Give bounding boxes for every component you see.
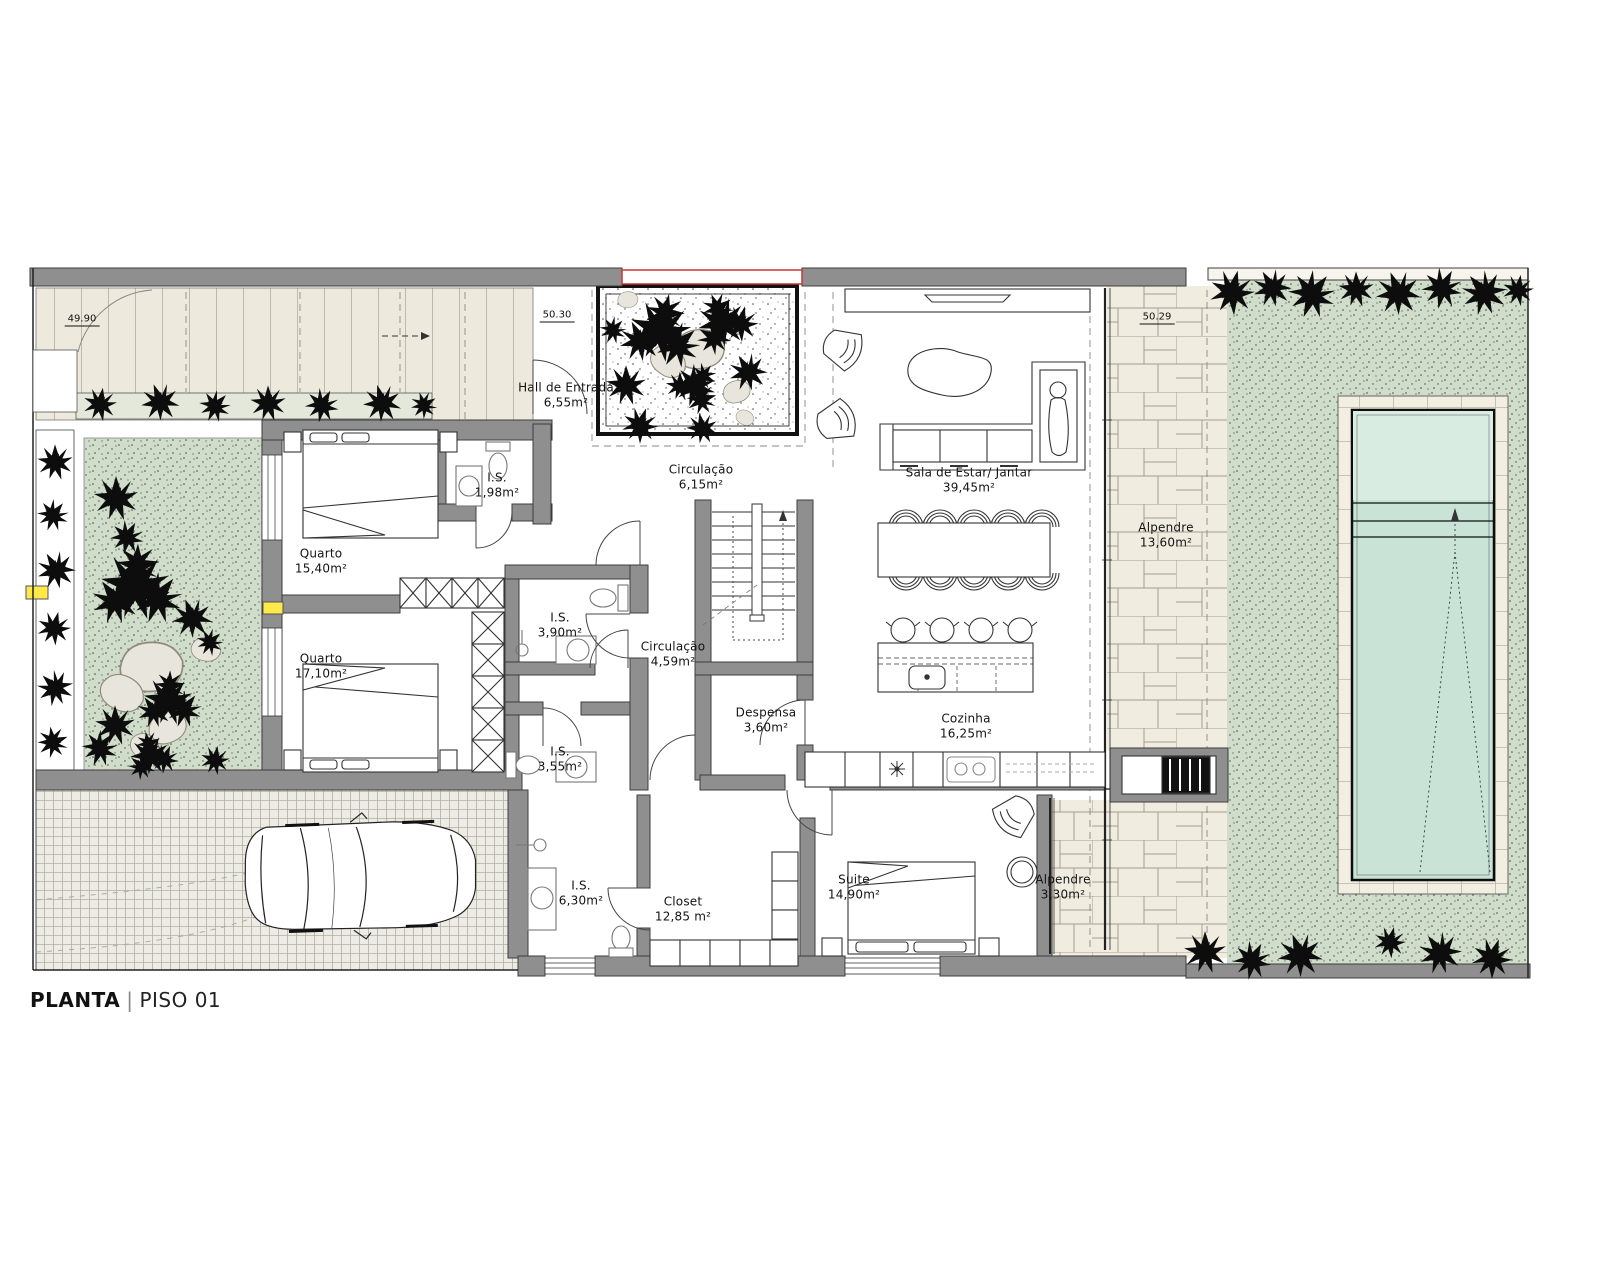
suite-armchair [987,788,1042,843]
marker-yellow-left [26,586,48,599]
alpendre-stone-right [1107,286,1227,751]
tv-console [845,289,1090,312]
floor-plan-drawing [0,0,1600,1280]
bbq-grill [1122,756,1216,794]
roof-opening-red [622,270,802,284]
kitchen-island [878,618,1037,692]
coffee-table [908,349,992,397]
suite-side-table [1007,857,1037,887]
alpendre-stone-lower [1049,800,1227,958]
stairs [703,504,795,640]
bed-quarto-2 [284,664,457,772]
armchair-1 [817,322,868,374]
left-planter-strip [36,430,74,778]
pool [1338,396,1508,894]
dining-set [878,510,1059,590]
bed-suite [822,862,999,956]
closet-shelves [650,852,798,966]
counter-sink [947,757,995,782]
kitchen-counter [805,752,1105,787]
bed-quarto-1 [284,430,457,538]
armchair-2 [811,396,860,446]
dining-table [878,523,1050,577]
floor-plan-sheet: Hall de Entrada6,55m² I.S.1,98m² Circula… [0,0,1600,1280]
hall-floor [551,286,598,434]
cooktop-icon [889,761,905,777]
marker-yellow-wall [263,602,283,614]
